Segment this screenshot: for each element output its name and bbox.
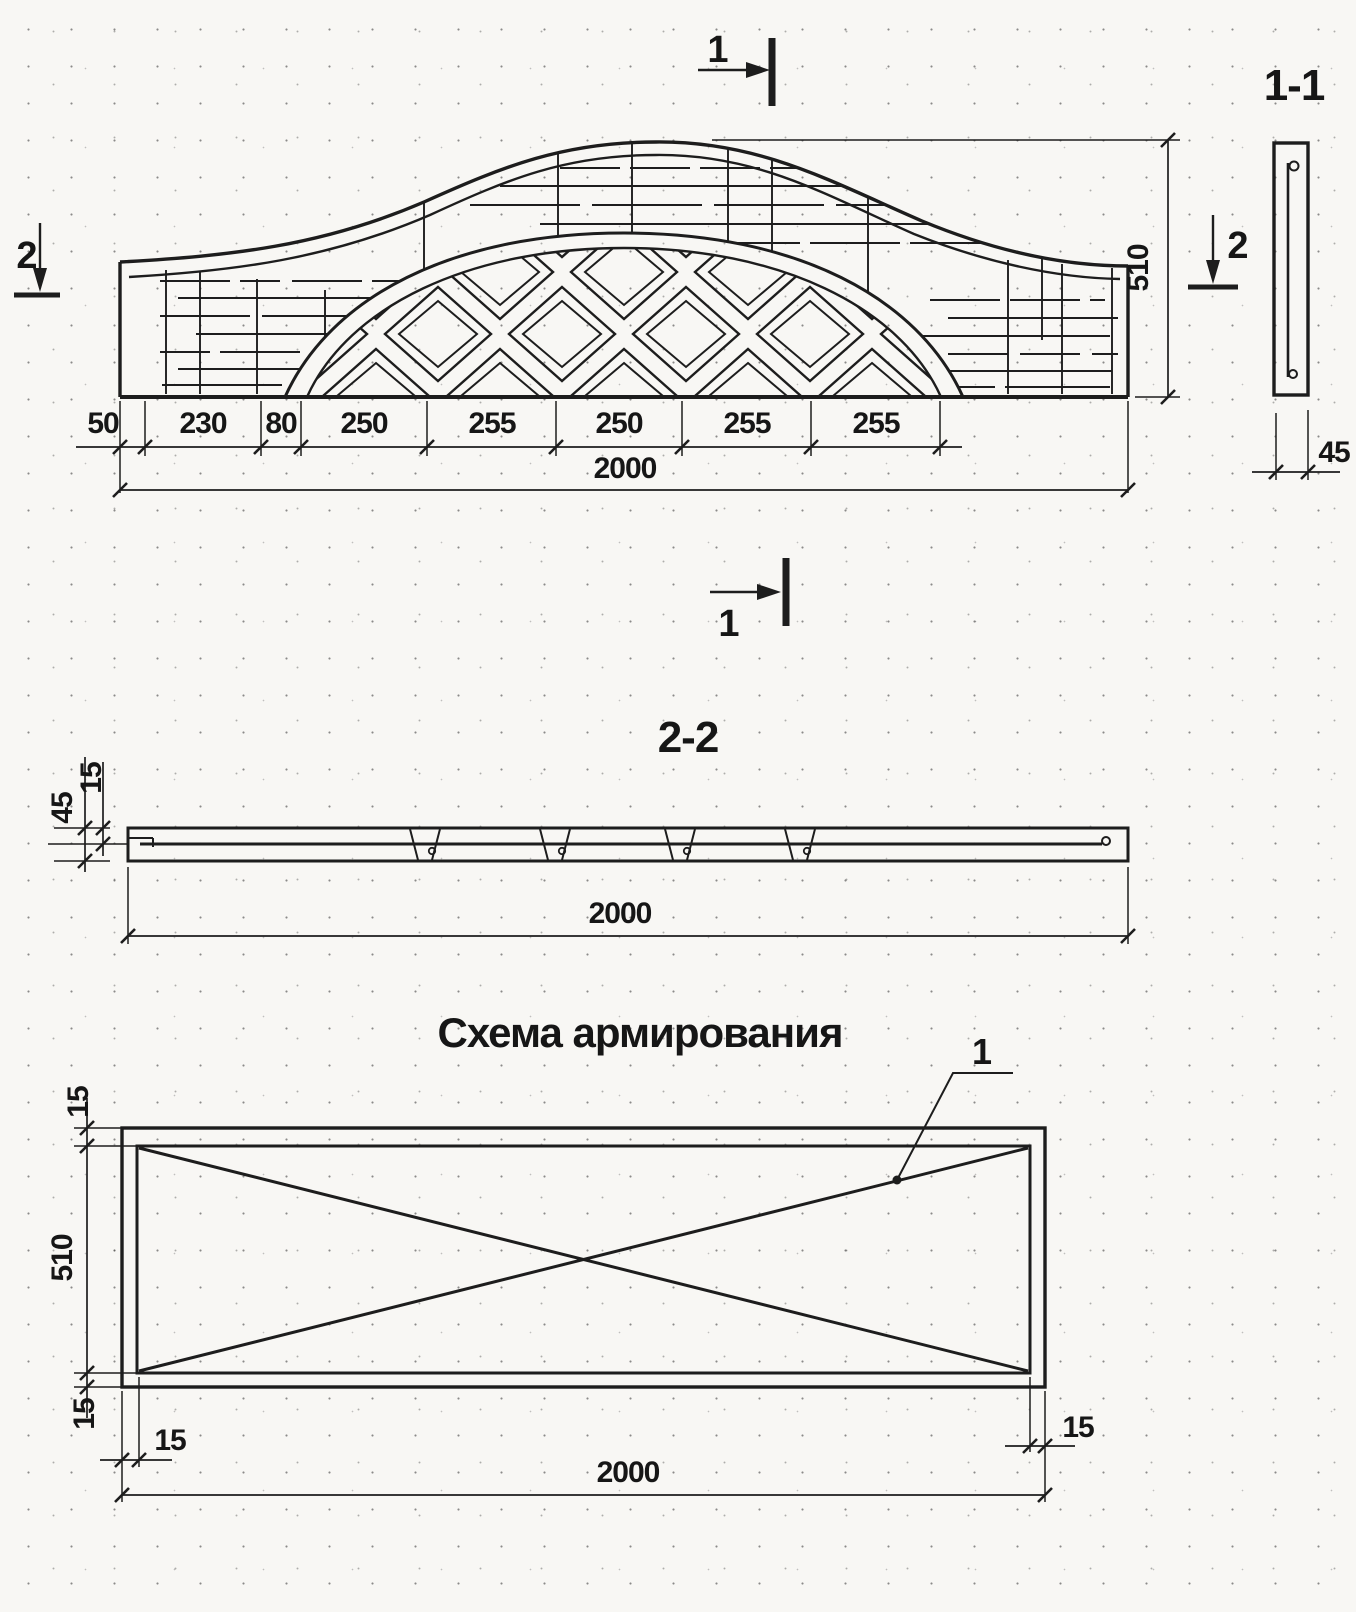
- section-1-1-dimension: 45: [1252, 410, 1350, 480]
- dim-height-label: 510: [1122, 244, 1155, 291]
- elevation-dimension-chain: 50 230 80 250 255 250 255 255 2000: [76, 401, 1135, 497]
- section-2-2-left-dimensions: 15 45: [46, 757, 128, 872]
- dim-thickness-label: 45: [46, 792, 79, 824]
- elevation-view: 1 2 2: [14, 29, 1249, 645]
- dim-label: 230: [179, 407, 226, 440]
- arrow-right-icon: [746, 62, 770, 78]
- section-marker-right-label: 2: [1227, 225, 1248, 267]
- dim-label: 80: [265, 407, 297, 440]
- drawing-sheet: 1 2 2: [0, 0, 1356, 1612]
- section-2-2-view: 2-2 15 45: [46, 713, 1135, 944]
- panel-contour: [122, 1128, 1045, 1387]
- scheme-title: Схема армирования: [438, 1009, 843, 1056]
- horizontal-rebar: [128, 837, 1110, 847]
- elevation-height-dimension: 510: [712, 133, 1180, 404]
- reinforcement-scheme-view: Схема армирования 1 15 510 15 15: [46, 1009, 1094, 1502]
- callout-label: 1: [972, 1031, 992, 1072]
- section-1-1-view: 1-1 45: [1252, 61, 1350, 480]
- dim-total-label: 2000: [594, 452, 657, 485]
- section-2-2-title: 2-2: [658, 713, 719, 762]
- arrow-down-icon: [33, 268, 47, 292]
- section-marker-1-bottom: 1: [710, 558, 786, 645]
- bar-callout: 1: [893, 1031, 1014, 1185]
- rebar-hook-end: [1102, 837, 1110, 845]
- section-marker-1-top: 1: [698, 29, 772, 106]
- panel-outline: [120, 142, 1128, 397]
- dim-label: 255: [468, 407, 515, 440]
- section-2-2-length-dimension: 2000: [121, 867, 1135, 944]
- technical-drawing: 1 2 2: [0, 0, 1356, 1612]
- dim-bottom-right-label: 15: [1062, 1411, 1094, 1444]
- panel-inner-border: [129, 155, 1120, 279]
- dim-label: 255: [723, 407, 770, 440]
- dim-length-label: 2000: [589, 897, 652, 930]
- scheme-left-dimensions: 15 510 15: [46, 1086, 141, 1430]
- scheme-bottom-dimensions: 15 15 2000: [100, 1377, 1094, 1502]
- section-marker-top-label: 1: [707, 29, 728, 71]
- rebar-mesh-lines: [160, 141, 1118, 394]
- section-marker-bottom-label: 1: [718, 603, 739, 645]
- section-marker-2-right: 2: [1188, 215, 1249, 287]
- section-marker-2-left: 2: [14, 223, 60, 295]
- dim-cover-label: 15: [75, 762, 108, 794]
- vertical-rebar: [1288, 162, 1299, 379]
- dim-side-bottom-label: 15: [68, 1398, 101, 1430]
- dim-side-top-label: 15: [62, 1086, 95, 1118]
- arrow-down-icon: [1206, 260, 1220, 284]
- arrow-right-icon: [757, 584, 781, 600]
- dim-label: 255: [852, 407, 899, 440]
- dim-label: 50: [87, 407, 119, 440]
- dim-bottom-left-label: 15: [154, 1424, 186, 1457]
- section-1-1-body: [1274, 143, 1308, 395]
- section-1-1-title: 1-1: [1264, 61, 1325, 110]
- dim-bottom-total-label: 2000: [597, 1456, 660, 1489]
- rebar-hook-top: [1290, 162, 1299, 171]
- dim-label: 250: [595, 407, 642, 440]
- dim-label: 250: [340, 407, 387, 440]
- dim-width-label: 45: [1318, 436, 1350, 469]
- rebar-hook-bottom: [1289, 370, 1297, 378]
- dim-side-height-label: 510: [46, 1234, 79, 1281]
